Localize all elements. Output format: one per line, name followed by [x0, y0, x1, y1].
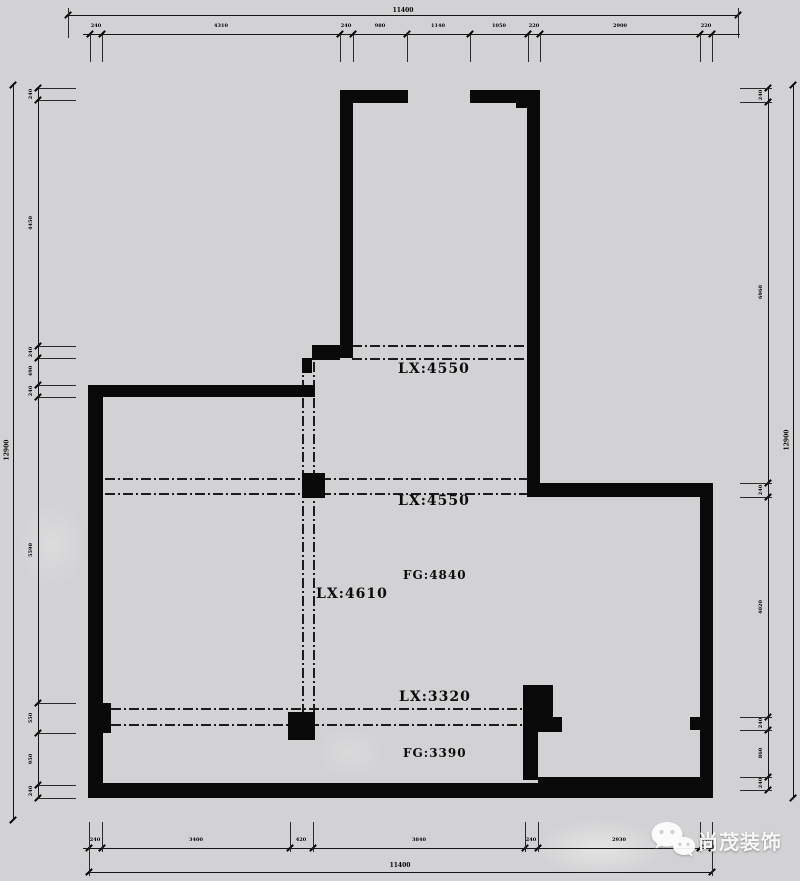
- dimension-value: 12900: [784, 430, 791, 451]
- ceiling-height-upper: FG:4840: [403, 568, 467, 582]
- dimension-line: [768, 88, 769, 790]
- concrete-column: [302, 473, 325, 498]
- extension-line: [90, 34, 91, 62]
- extension-line: [38, 798, 76, 799]
- dimension-value: 220: [701, 23, 711, 29]
- beam-centerline: [111, 724, 523, 726]
- dimension-value: 11400: [393, 7, 414, 14]
- beam-label-vertical: LX:4610: [316, 586, 388, 602]
- dimension-value: 5590: [28, 543, 34, 557]
- beam-centerline: [302, 362, 304, 712]
- wechat-icon: [650, 820, 696, 860]
- wall-segment: [527, 90, 540, 497]
- wall-segment: [312, 345, 340, 360]
- floor-plan-canvas: 2408602404020240696024024095055055902404…: [0, 0, 800, 881]
- extension-line: [38, 358, 76, 359]
- extension-line: [540, 34, 541, 62]
- dimension-value: 3840: [412, 837, 426, 843]
- dimension-line: [89, 872, 712, 873]
- beam-label-upper: LX:4550: [398, 361, 470, 377]
- dimension-line: [38, 88, 39, 798]
- dimension-value: 240: [91, 23, 101, 29]
- extension-line: [38, 100, 76, 101]
- extension-line: [38, 733, 76, 734]
- ceiling-height-lower: FG:3390: [403, 746, 467, 760]
- dimension-value: 240: [341, 23, 351, 29]
- extension-line: [38, 703, 76, 704]
- extension-line: [38, 385, 76, 386]
- concrete-column: [288, 712, 315, 740]
- extension-line: [68, 8, 69, 38]
- extension-line: [407, 34, 408, 62]
- dimension-value: 4310: [214, 23, 228, 29]
- dimension-value: 1050: [492, 23, 506, 29]
- dimension-line: [83, 848, 713, 849]
- extension-line: [700, 34, 701, 62]
- wall-segment: [470, 90, 540, 103]
- beam-centerline: [313, 362, 315, 712]
- dimension-value: 12900: [4, 440, 11, 461]
- dimension-value: 240: [758, 485, 764, 495]
- dimension-value: 6960: [758, 285, 764, 299]
- wall-segment: [88, 783, 713, 798]
- extension-line: [38, 785, 76, 786]
- wall-segment: [88, 385, 103, 798]
- extension-line: [102, 34, 103, 62]
- dimension-value: 220: [529, 23, 539, 29]
- dimension-line: [68, 15, 738, 16]
- dimension-value: 490: [28, 366, 34, 376]
- watermark-brand: 尚茂装饰: [698, 826, 782, 855]
- dimension-value: 3400: [189, 837, 203, 843]
- wall-segment: [516, 103, 540, 108]
- dimension-value: 420: [296, 837, 306, 843]
- dimension-value: 4020: [758, 600, 764, 614]
- dimension-value: 980: [375, 23, 385, 29]
- extension-line: [89, 822, 90, 876]
- dimension-value: 860: [758, 748, 764, 758]
- extension-line: [528, 34, 529, 62]
- extension-line: [470, 34, 471, 62]
- dimension-value: 2930: [612, 837, 626, 843]
- dimension-line: [793, 85, 794, 798]
- wall-segment: [88, 385, 315, 397]
- wall-segment: [690, 717, 700, 730]
- paper-smudge: [315, 725, 385, 780]
- extension-line: [353, 34, 354, 62]
- beam-label-lower: LX:3320: [399, 689, 471, 705]
- dimension-value: 1140: [431, 23, 445, 29]
- beam-centerline: [111, 708, 523, 710]
- wall-segment: [700, 483, 713, 798]
- dimension-value: 240: [526, 837, 536, 843]
- dimension-value: 11400: [390, 862, 411, 869]
- extension-line: [712, 34, 713, 62]
- beam-centerline: [352, 345, 527, 347]
- dimension-line: [13, 85, 14, 820]
- dimension-value: 240: [90, 837, 100, 843]
- beam-centerline: [352, 358, 527, 360]
- wall-segment: [523, 685, 538, 780]
- dimension-value: 2900: [613, 23, 627, 29]
- extension-line: [340, 34, 341, 62]
- dimension-line: [83, 34, 740, 35]
- watermark: 尚茂装饰: [650, 820, 782, 860]
- extension-line: [38, 88, 76, 89]
- extension-line: [38, 397, 76, 398]
- dimension-value: 550: [28, 713, 34, 723]
- beam-label-middle: LX:4550: [398, 493, 470, 509]
- extension-line: [740, 790, 772, 791]
- extension-line: [38, 346, 76, 347]
- wall-segment: [302, 358, 312, 373]
- wall-segment: [340, 90, 408, 103]
- dimension-value: 950: [28, 754, 34, 764]
- dimension-value: 4450: [28, 216, 34, 230]
- wall-segment: [103, 703, 111, 733]
- wall-segment: [530, 483, 713, 497]
- dimension-value: 240: [758, 90, 764, 100]
- wall-segment: [340, 90, 353, 358]
